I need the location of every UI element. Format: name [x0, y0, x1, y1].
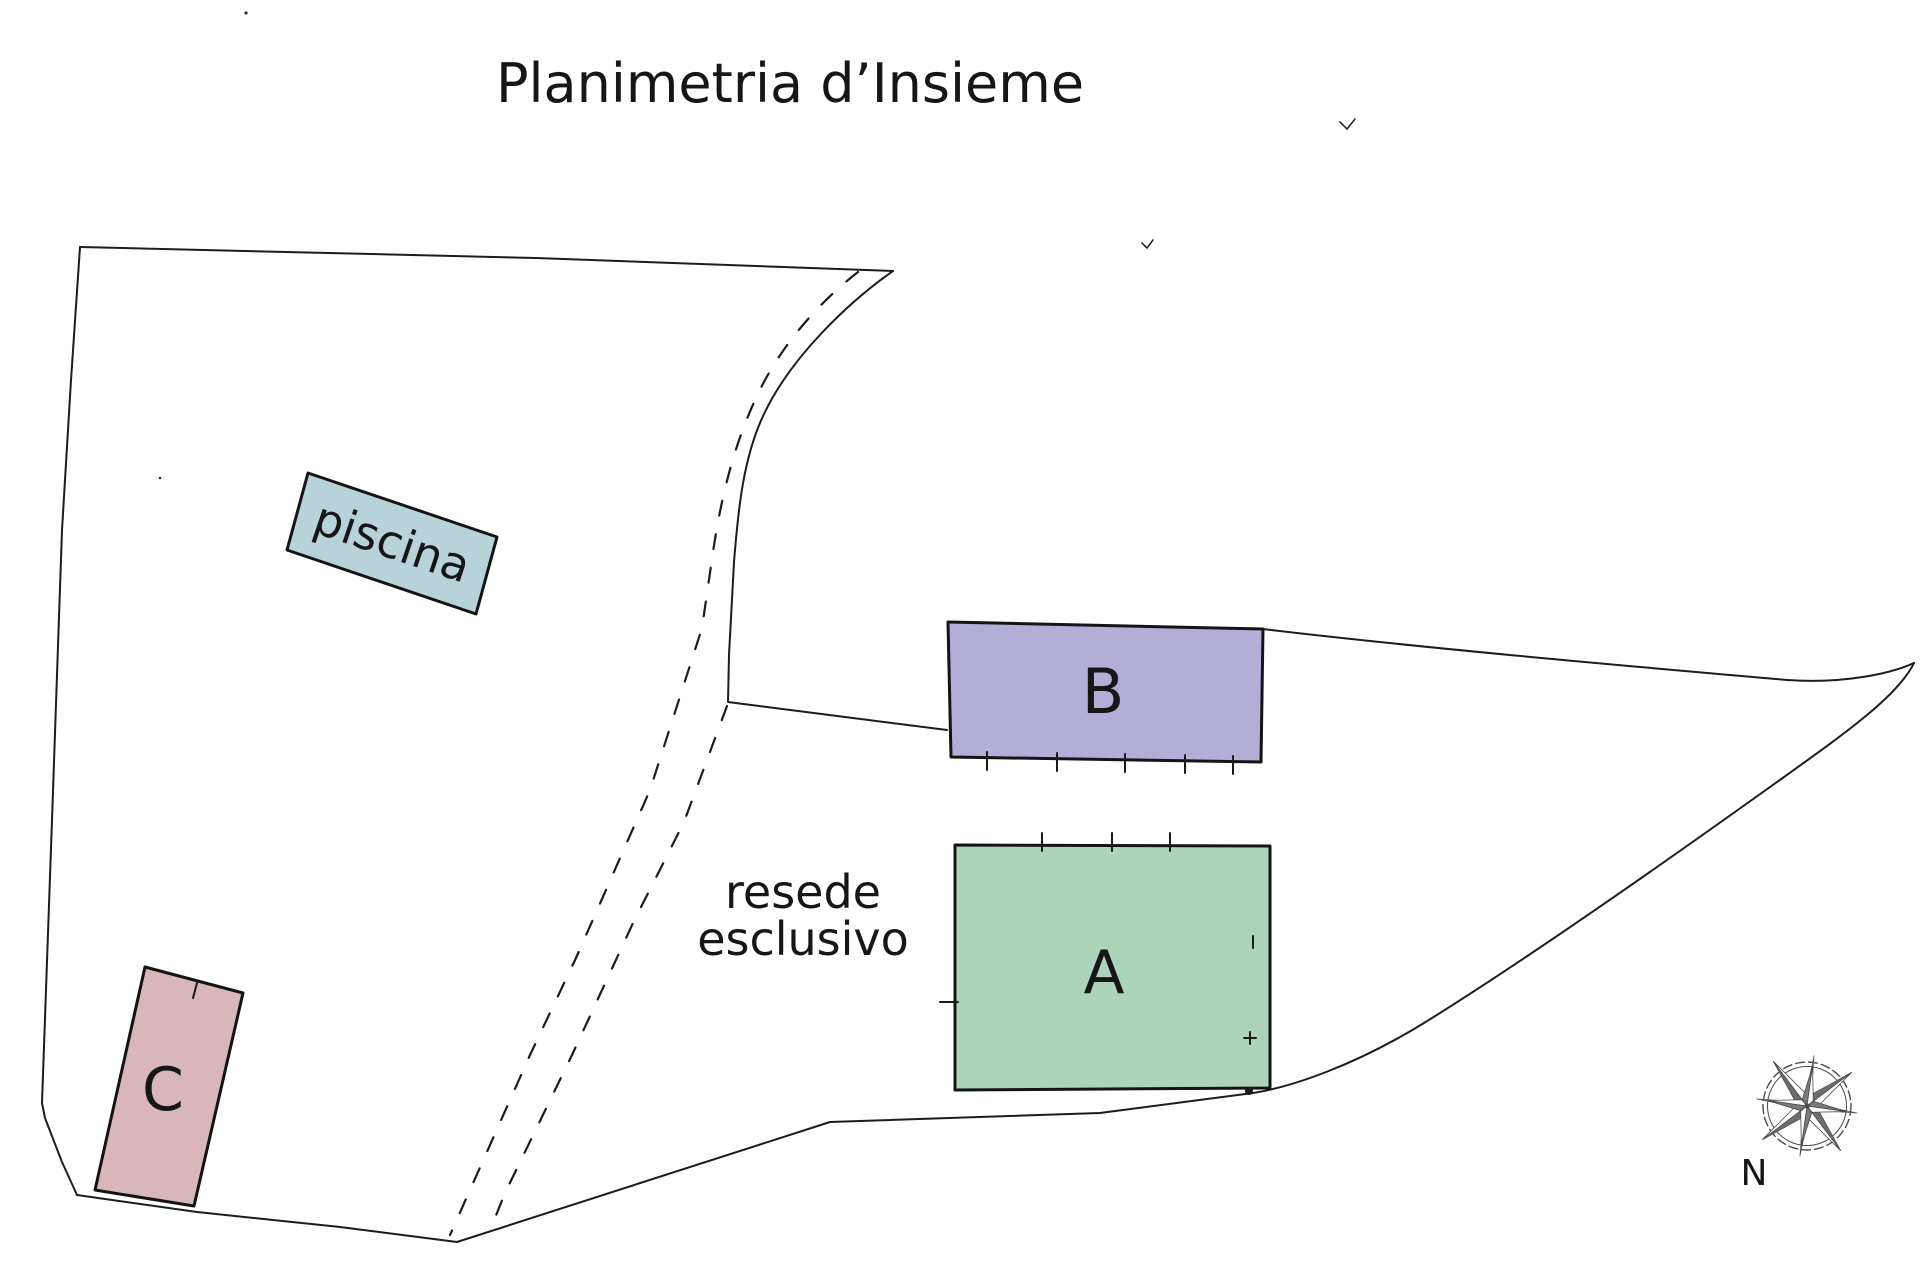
resede-label-line1: resede — [725, 865, 881, 919]
boundary-top-right-edge — [1263, 629, 1914, 681]
compass-rose-icon — [1749, 1048, 1864, 1163]
compass-star — [1749, 1048, 1864, 1163]
parcel-c-label: C — [142, 1055, 184, 1125]
north-label: N — [1741, 1153, 1768, 1194]
boundary-top-edge — [80, 247, 893, 271]
site-plan-drawing: Planimetria d’Insieme piscina B A C rese… — [0, 0, 1920, 1280]
resede-label-line2: esclusivo — [697, 912, 909, 966]
boundary-bottom-left-edge — [77, 1195, 457, 1242]
boundary-road-right-edge — [728, 271, 947, 730]
stray-check-mark-2 — [1142, 240, 1153, 248]
site-plan-page: Planimetria d’Insieme piscina B A C rese… — [0, 0, 1920, 1280]
road-path — [450, 272, 858, 1235]
stray-dot-3 — [1245, 1087, 1253, 1095]
parcel-a-label: A — [1083, 938, 1124, 1008]
boundary-left-edge — [42, 247, 80, 1195]
plan-title: Planimetria d’Insieme — [496, 52, 1084, 115]
stray-dot-1 — [244, 11, 247, 14]
stray-dot-2 — [159, 477, 162, 480]
road-dashed-line-left — [450, 272, 858, 1235]
road-dashed-line-right — [491, 706, 727, 1228]
parcel-b-label: B — [1082, 655, 1125, 728]
stray-check-mark-1 — [1340, 119, 1355, 129]
